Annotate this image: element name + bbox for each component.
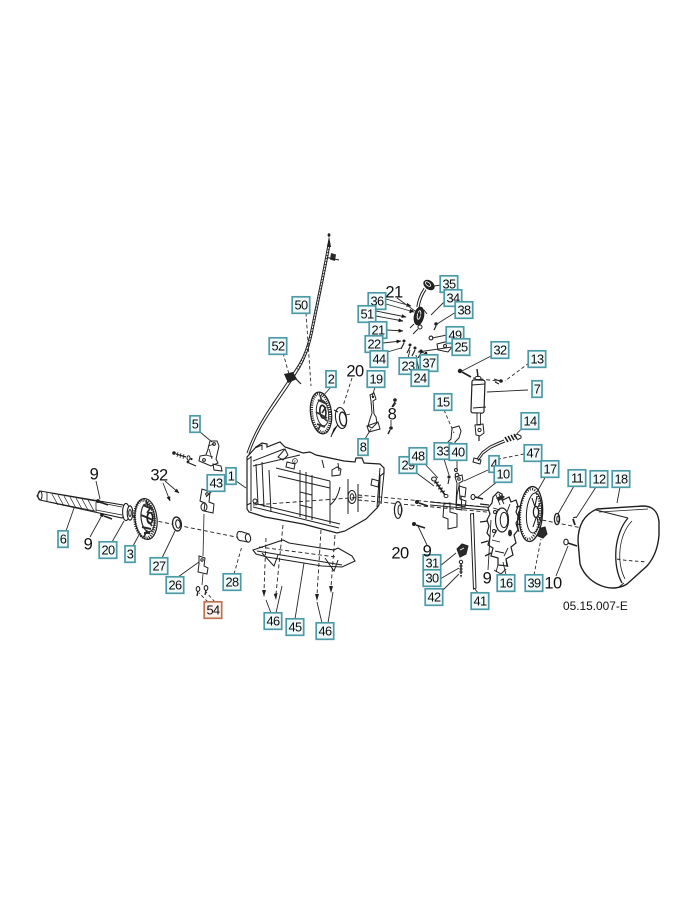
svg-text:43: 43 <box>209 475 223 490</box>
svg-text:8: 8 <box>360 439 367 454</box>
svg-text:11: 11 <box>571 470 584 485</box>
svg-text:20: 20 <box>101 542 115 557</box>
svg-text:45: 45 <box>288 619 302 634</box>
svg-text:13: 13 <box>530 351 544 366</box>
svg-text:05.15.007-E: 05.15.007-E <box>563 599 628 613</box>
svg-text:26: 26 <box>168 577 182 592</box>
svg-text:28: 28 <box>225 574 239 589</box>
svg-text:3: 3 <box>127 546 134 561</box>
svg-text:33: 33 <box>436 443 450 458</box>
svg-text:46: 46 <box>266 613 280 628</box>
svg-text:41: 41 <box>473 593 487 608</box>
svg-text:9: 9 <box>423 543 432 561</box>
svg-text:46: 46 <box>318 623 332 638</box>
svg-text:30: 30 <box>425 570 439 585</box>
svg-text:15: 15 <box>436 394 450 409</box>
svg-text:10: 10 <box>496 466 510 481</box>
svg-text:18: 18 <box>614 471 628 486</box>
svg-text:24: 24 <box>413 370 427 385</box>
svg-text:17: 17 <box>543 461 557 476</box>
svg-text:9: 9 <box>84 536 93 554</box>
svg-text:10: 10 <box>544 575 562 593</box>
svg-text:38: 38 <box>457 302 471 317</box>
svg-text:14: 14 <box>523 413 537 428</box>
svg-text:1: 1 <box>228 468 235 483</box>
svg-text:20: 20 <box>391 545 409 563</box>
svg-text:9: 9 <box>483 570 492 588</box>
svg-text:22: 22 <box>367 336 381 351</box>
svg-text:8: 8 <box>388 406 397 424</box>
svg-text:7: 7 <box>534 381 541 396</box>
svg-text:12: 12 <box>592 471 606 486</box>
svg-text:25: 25 <box>454 339 468 354</box>
svg-text:21: 21 <box>385 284 403 302</box>
svg-text:50: 50 <box>294 297 308 312</box>
svg-text:32: 32 <box>493 342 507 357</box>
svg-text:47: 47 <box>526 445 540 460</box>
svg-text:40: 40 <box>451 444 465 459</box>
svg-text:27: 27 <box>152 558 166 573</box>
svg-text:48: 48 <box>411 448 425 463</box>
svg-text:19: 19 <box>369 371 383 386</box>
svg-text:9: 9 <box>90 466 99 484</box>
svg-text:16: 16 <box>499 575 513 590</box>
svg-text:39: 39 <box>527 575 541 590</box>
svg-text:6: 6 <box>60 531 67 546</box>
svg-text:2: 2 <box>328 371 335 386</box>
svg-text:37: 37 <box>422 355 436 370</box>
svg-text:54: 54 <box>206 602 220 617</box>
svg-text:44: 44 <box>372 351 386 366</box>
svg-text:20: 20 <box>346 363 364 381</box>
svg-text:51: 51 <box>360 306 374 321</box>
svg-text:52: 52 <box>271 338 285 353</box>
svg-text:32: 32 <box>150 467 168 485</box>
svg-text:5: 5 <box>192 416 199 431</box>
svg-text:42: 42 <box>427 589 441 604</box>
